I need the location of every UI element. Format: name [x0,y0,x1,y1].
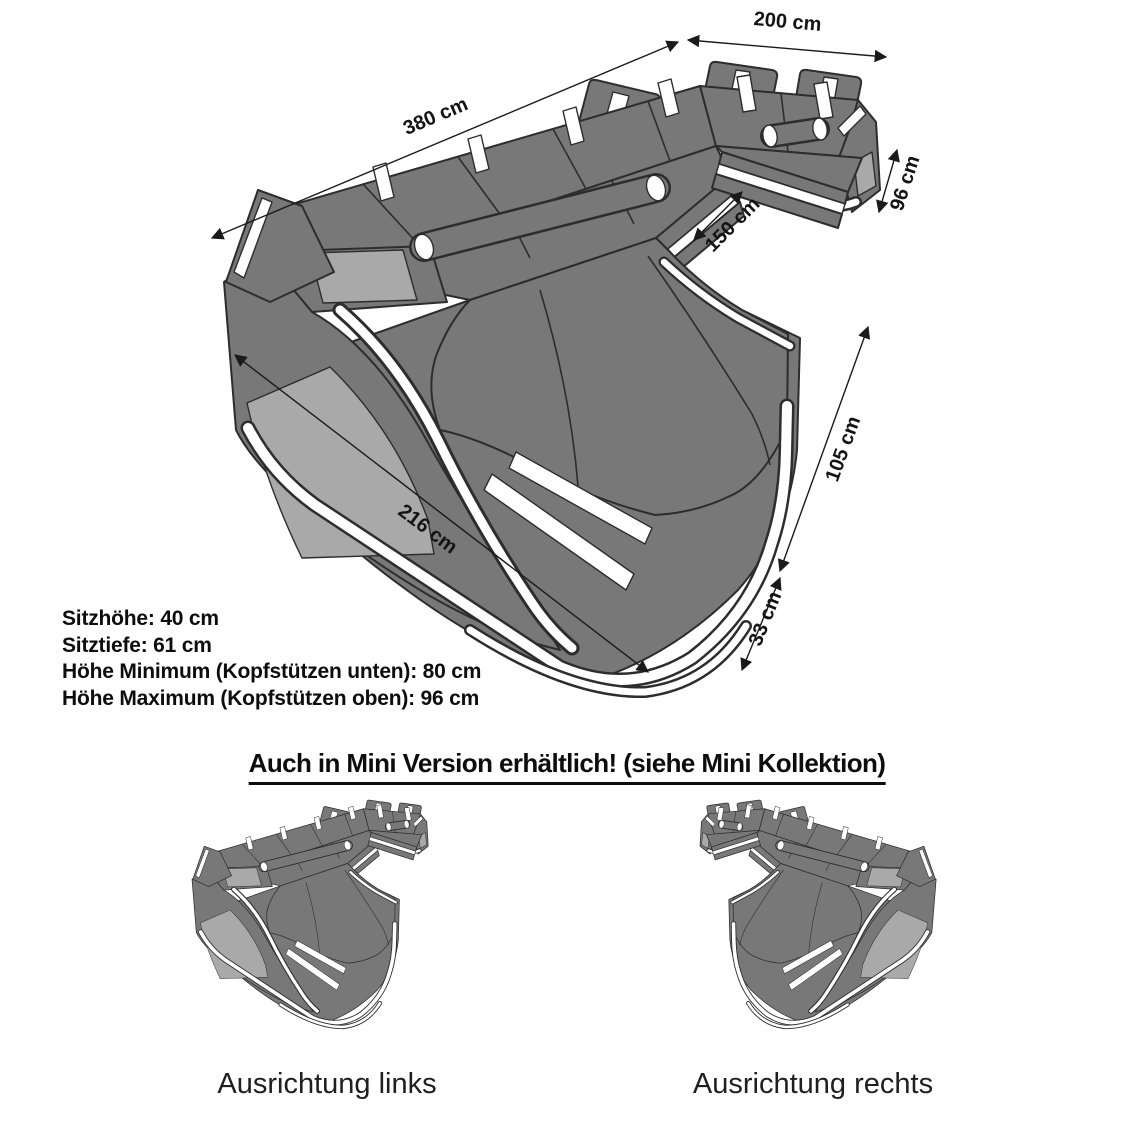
dimension-line-200 [688,40,886,57]
spec-line-hoehe-min: Höhe Minimum (Kopfstützen unten): 80 cm [62,659,481,686]
spec-line-hoehe-max: Höhe Maximum (Kopfstützen oben): 96 cm [62,686,481,713]
mini-version-heading: Auch in Mini Version erhältlich! (siehe … [249,748,886,785]
diagram-canvas: 380 cm 200 cm 96 cm 150 cm 105 cm 33 cm … [0,0,1134,1134]
spec-line-sitztiefe: Sitztiefe: 61 cm [62,633,481,660]
dimension-label-105: 105 cm [821,413,865,484]
seat-specs-block: Sitzhöhe: 40 cm Sitztiefe: 61 cm Höhe Mi… [62,606,481,712]
dimension-label-96: 96 cm [886,153,924,214]
sofa-illustration-mini-left [192,800,428,1027]
spec-line-sitzhoehe: Sitzhöhe: 40 cm [62,606,481,633]
caption-ausrichtung-rechts: Ausrichtung rechts [693,1068,933,1101]
sofa-dimension-sheet: 380 cm 200 cm 96 cm 150 cm 105 cm 33 cm … [0,0,1134,1134]
sofa-illustration-mini-right [700,800,936,1027]
dimension-label-200: 200 cm [753,8,823,36]
caption-ausrichtung-links: Ausrichtung links [217,1068,436,1101]
